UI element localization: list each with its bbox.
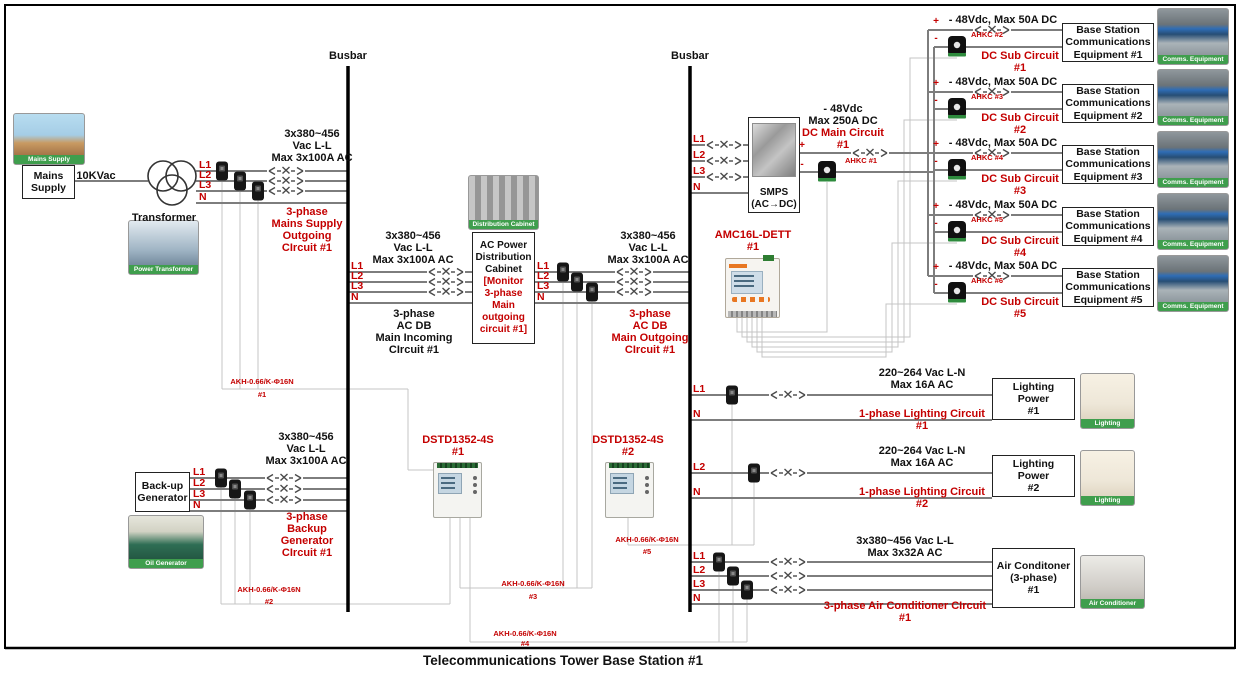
dc-sub-minus-sign: - — [928, 34, 944, 44]
outgoing-spec-label: 3x380~456 Vac L-L Max 3x100A AC — [607, 230, 688, 266]
smps-phase-l3: L3 — [693, 166, 705, 177]
dc-sub-spec: - 48Vdc, Max 50A DC — [949, 137, 1057, 149]
mains-voltage-label: 10KVac — [76, 170, 115, 182]
smps-phase-l2: L2 — [693, 150, 705, 161]
akh4-num: #4 — [521, 640, 529, 648]
ac-cabinet-title: AC Power Distribution Cabinet — [475, 240, 531, 276]
mains-ct-sensor-label: AKH-0.66/K-Φ16N — [230, 378, 293, 386]
transformer-label: Transformer — [132, 212, 196, 224]
dc-sub-plus-sign: + — [928, 79, 944, 89]
outgoing-phase-l3: L3 — [537, 281, 549, 292]
comms-photo-caption-5: Comms. Equipment — [1158, 302, 1228, 311]
lighting-power-box-2: Lighting Power #2 — [992, 455, 1075, 497]
lighting1-neutral: N — [693, 409, 701, 420]
comms-photo-caption-4: Comms. Equipment — [1158, 240, 1228, 249]
dstd2-meter-device — [605, 462, 654, 518]
dc-main-minus-sign: - — [794, 160, 810, 170]
diagram-canvas: Busbar Busbar Telecommunications Tower B… — [0, 0, 1240, 675]
amc16-meter-device — [725, 258, 780, 318]
dc-sub-spec: - 48Vdc, Max 50A DC — [949, 14, 1057, 26]
dstd1-terminals — [437, 463, 478, 468]
lighting-power-box-1: Lighting Power #1 — [992, 378, 1075, 420]
mains-spec-label: 3x380~456 Vac L-L Max 3x100A AC — [271, 128, 352, 164]
dstd2-terminals — [609, 463, 650, 468]
lighting2-neutral: N — [693, 487, 701, 498]
oil-generator-photo: Oil Generator — [128, 515, 204, 569]
dstd2-label: DSTD1352-4S — [592, 434, 664, 446]
equipment-box-2: Base Station Communications Equipment #2 — [1062, 84, 1154, 123]
dstd1-lcd — [438, 473, 462, 494]
mains-phase-l3: L3 — [199, 180, 211, 191]
incoming-spec-label: 3x380~456 Vac L-L Max 3x100A AC — [372, 230, 453, 266]
comms-photo-caption-1: Comms. Equipment — [1158, 55, 1228, 64]
lighting1-spec-label: 220~264 Vac L-N Max 16A AC — [879, 367, 966, 391]
distribution-cabinet-photo-caption: Distribution Cabinet — [469, 220, 538, 229]
dc-main-plus-sign: + — [794, 141, 810, 151]
dc-sub-plus-sign: + — [928, 202, 944, 212]
comms-equipment-photo-4: Comms. Equipment — [1157, 193, 1229, 250]
comms-photo-caption-2: Comms. Equipment — [1158, 116, 1228, 125]
mains-supply-photo: Mains Supply — [13, 113, 85, 165]
page-title: Telecommunications Tower Base Station #1 — [423, 653, 703, 668]
dc-sub-minus-sign: - — [928, 96, 944, 106]
aircon-photo: Air Conditioner — [1080, 555, 1145, 609]
ahkc5-sensor-label: AHKC #5 — [971, 216, 1003, 224]
mains-supply-photo-caption: Mains Supply — [14, 155, 84, 164]
akh4-label: AKH-0.66/K-Φ16N — [493, 630, 556, 638]
akh5-label: AKH-0.66/K-Φ16N — [615, 536, 678, 544]
comms-equipment-photo-5: Comms. Equipment — [1157, 255, 1229, 312]
outgoing-phase-n: N — [537, 292, 545, 303]
generator-ct-sensor-num: #2 — [265, 598, 273, 606]
akh3-label: AKH-0.66/K-Φ16N — [501, 580, 564, 588]
lighting-photo-1: Lighting — [1080, 373, 1135, 429]
mains-circuit-label: 3-phase Mains Supply Outgoing CIrcuit #1 — [272, 206, 343, 254]
mains-phase-n: N — [199, 192, 207, 203]
dc-sub-minus-sign: - — [928, 219, 944, 229]
backup-generator-box: Back-up Generator — [135, 472, 190, 512]
dc-sub-circuit-label: DC Sub Circuit #4 — [981, 235, 1059, 259]
dstd2-buttons — [645, 476, 649, 480]
generator-ct-sensor-label: AKH-0.66/K-Φ16N — [237, 586, 300, 594]
busbar-right-label: Busbar — [671, 50, 709, 62]
aircon-photo-caption: Air Conditioner — [1081, 599, 1144, 608]
dc-sub-circuit-label: DC Sub Circuit #2 — [981, 112, 1059, 136]
lighting2-phase: L2 — [693, 462, 705, 473]
generator-phase-l2: L2 — [193, 478, 205, 489]
generator-phase-l3: L3 — [193, 489, 205, 500]
amc16-terminals — [728, 311, 777, 317]
akh5-num: #5 — [643, 548, 651, 556]
distribution-cabinet-photo: Distribution Cabinet — [468, 175, 539, 230]
amc16-brand-stripe — [729, 264, 747, 268]
lighting-photo-2: Lighting — [1080, 450, 1135, 506]
ahkc4-sensor-label: AHKC #4 — [971, 154, 1003, 162]
ac-cabinet-box: AC Power Distribution Cabinet [Monitor 3… — [472, 232, 535, 344]
dstd1-buttons — [473, 476, 477, 480]
incoming-phase-l3: L3 — [351, 281, 363, 292]
incoming-phase-n: N — [351, 292, 359, 303]
dc-sub-plus-sign: + — [928, 263, 944, 273]
dc-sub-minus-sign: - — [928, 157, 944, 167]
smps-phase-n: N — [693, 182, 701, 193]
lighting1-phase: L1 — [693, 384, 705, 395]
ahkc6-sensor-label: AHKC #6 — [971, 277, 1003, 285]
smps-device-photo — [752, 123, 796, 177]
aircon-box: Air Conditoner (3-phase) #1 — [992, 548, 1075, 608]
lighting-photo-caption-1: Lighting — [1081, 419, 1134, 428]
amc16-num: #1 — [747, 241, 759, 253]
dc-sub-circuit-label: DC Sub Circuit #3 — [981, 173, 1059, 197]
equipment-box-1: Base Station Communications Equipment #1 — [1062, 23, 1154, 62]
power-transformer-photo-caption: Power Transformer — [129, 265, 198, 274]
ahkc2-sensor-label: AHKC #2 — [971, 31, 1003, 39]
lighting2-circuit-label: 1-phase Lighting Circuit #2 — [859, 486, 985, 510]
dstd1-meter-device — [433, 462, 482, 518]
incoming-circuit-label: 3-phase AC DB Main Incoming CIrcuit #1 — [376, 308, 453, 356]
generator-phase-n: N — [193, 500, 201, 511]
dstd1-label: DSTD1352-4S — [422, 434, 494, 446]
generator-spec-label: 3x380~456 Vac L-L Max 3x100A AC — [265, 431, 346, 467]
equipment-box-4: Base Station Communications Equipment #4 — [1062, 207, 1154, 246]
lighting-photo-caption-2: Lighting — [1081, 496, 1134, 505]
ac-cabinet-subtitle: [Monitor 3-phase Main outgoing circuit #… — [480, 276, 527, 336]
akh3-num: #3 — [529, 593, 537, 601]
comms-equipment-photo-2: Comms. Equipment — [1157, 69, 1229, 126]
busbar-left-label: Busbar — [329, 50, 367, 62]
aircon-phase-l1: L1 — [693, 551, 705, 562]
generator-phase-l1: L1 — [193, 467, 205, 478]
aircon-circuit-label: 3-phase Air Conditioner CIrcuit #1 — [824, 600, 986, 624]
oil-generator-photo-caption: Oil Generator — [129, 559, 203, 568]
amc16-connector — [763, 255, 774, 261]
amc16-lcd — [731, 271, 763, 294]
mains-ct-sensor-num: #1 — [258, 391, 266, 399]
power-transformer-photo: Power Transformer — [128, 220, 199, 275]
outgoing-circuit-label: 3-phase AC DB Main Outgoing CIrcuit #1 — [612, 308, 689, 356]
dc-sub-plus-sign: + — [928, 140, 944, 150]
aircon-phase-l2: L2 — [693, 565, 705, 576]
dc-sub-plus-sign: + — [928, 17, 944, 27]
dstd2-lcd — [610, 473, 634, 494]
dc-sub-circuit-label: DC Sub Circuit #5 — [981, 296, 1059, 320]
aircon-phase-n: N — [693, 593, 701, 604]
dc-sub-minus-sign: - — [928, 280, 944, 290]
dstd2-num: #2 — [622, 446, 634, 458]
smps-phase-l1: L1 — [693, 134, 705, 145]
ahkc3-sensor-label: AHKC #3 — [971, 93, 1003, 101]
dstd1-num: #1 — [452, 446, 464, 458]
lighting2-spec-label: 220~264 Vac L-N Max 16A AC — [879, 445, 966, 469]
dc-sub-spec: - 48Vdc, Max 50A DC — [949, 76, 1057, 88]
dc-main-circuit-label: DC Main Circuit #1 — [802, 127, 884, 151]
dc-main-spec-label: - 48Vdc Max 250A DC — [808, 103, 877, 127]
transformer-icon — [148, 161, 196, 205]
dc-sub-spec: - 48Vdc, Max 50A DC — [949, 199, 1057, 211]
dc-sub-spec: - 48Vdc, Max 50A DC — [949, 260, 1057, 272]
aircon-spec-label: 3x380~456 Vac L-L Max 3x32A AC — [856, 535, 954, 559]
mains-supply-box: Mains Supply — [22, 165, 75, 199]
amc16-buttons — [732, 297, 770, 302]
aircon-phase-l3: L3 — [693, 579, 705, 590]
comms-equipment-photo-3: Comms. Equipment — [1157, 131, 1229, 188]
comms-photo-caption-3: Comms. Equipment — [1158, 178, 1228, 187]
equipment-box-3: Base Station Communications Equipment #3 — [1062, 145, 1154, 184]
comms-equipment-photo-1: Comms. Equipment — [1157, 8, 1229, 65]
amc16-label: AMC16L-DETT — [715, 229, 791, 241]
generator-circuit-label: 3-phase Backup Generator CIrcuit #1 — [281, 511, 334, 559]
lighting1-circuit-label: 1-phase Lighting Circuit #1 — [859, 408, 985, 432]
equipment-box-5: Base Station Communications Equipment #5 — [1062, 268, 1154, 307]
ahkc1-sensor-label: AHKC #1 — [845, 157, 877, 165]
dc-sub-circuit-label: DC Sub Circuit #1 — [981, 50, 1059, 74]
